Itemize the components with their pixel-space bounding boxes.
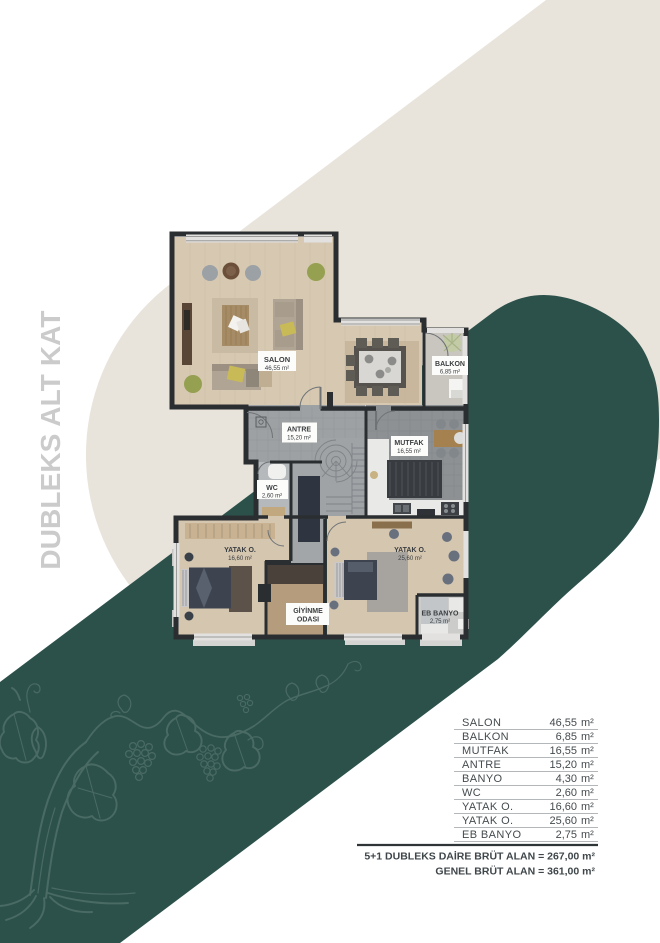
svg-text:GENEL BRÜT ALAN = 361,00 m²: GENEL BRÜT ALAN = 361,00 m² — [435, 865, 595, 878]
svg-text:m²: m² — [581, 829, 594, 841]
svg-text:16,55: 16,55 — [549, 745, 577, 757]
svg-text:16,60 m²: 16,60 m² — [228, 556, 252, 562]
svg-text:GİYİNME: GİYİNME — [293, 607, 323, 615]
svg-text:ANTRE: ANTRE — [462, 759, 501, 771]
svg-text:2,60: 2,60 — [556, 787, 577, 799]
svg-text:2,75: 2,75 — [556, 829, 577, 841]
svg-text:2,60 m²: 2,60 m² — [262, 494, 282, 500]
svg-text:m²: m² — [581, 801, 594, 813]
svg-text:5+1 DUBLEKS DAİRE BRÜT ALAN =: 5+1 DUBLEKS DAİRE BRÜT ALAN = 267,00 m² — [364, 850, 595, 863]
svg-text:ANTRE: ANTRE — [287, 427, 311, 434]
svg-text:YATAK O.: YATAK O. — [394, 547, 426, 554]
svg-text:BALKON: BALKON — [462, 731, 509, 743]
svg-text:16,55 m²: 16,55 m² — [397, 449, 421, 455]
svg-text:MUTFAK: MUTFAK — [394, 440, 423, 447]
svg-text:YATAK O.: YATAK O. — [462, 815, 514, 827]
svg-text:m²: m² — [581, 787, 594, 799]
svg-text:DUBLEKS ALT KAT: DUBLEKS ALT KAT — [35, 310, 66, 569]
svg-text:4,30: 4,30 — [556, 773, 577, 785]
svg-text:15,20 m²: 15,20 m² — [287, 436, 311, 442]
svg-text:BALKON: BALKON — [435, 361, 465, 368]
svg-text:SALON: SALON — [462, 717, 501, 729]
svg-text:6,85: 6,85 — [556, 731, 577, 743]
svg-text:15,20: 15,20 — [549, 759, 577, 771]
svg-text:WC: WC — [266, 485, 278, 492]
svg-text:WC: WC — [462, 787, 481, 799]
svg-text:m²: m² — [581, 815, 594, 827]
svg-text:EB BANYO: EB BANYO — [422, 611, 460, 618]
svg-text:6,85 m²: 6,85 m² — [440, 370, 460, 376]
svg-text:2,75 m²: 2,75 m² — [430, 619, 450, 625]
svg-text:16,60: 16,60 — [549, 801, 577, 813]
svg-text:ODASI: ODASI — [297, 617, 319, 624]
svg-text:25,60 m²: 25,60 m² — [398, 556, 422, 562]
svg-text:YATAK O.: YATAK O. — [462, 801, 514, 813]
svg-text:m²: m² — [581, 759, 594, 771]
svg-text:m²: m² — [581, 745, 594, 757]
svg-text:46,55: 46,55 — [549, 717, 577, 729]
svg-text:m²: m² — [581, 717, 594, 729]
svg-text:m²: m² — [581, 731, 594, 743]
svg-text:EB BANYO: EB BANYO — [462, 829, 521, 841]
svg-text:46,55 m²: 46,55 m² — [265, 365, 289, 372]
svg-text:MUTFAK: MUTFAK — [462, 745, 509, 757]
svg-text:SALON: SALON — [264, 355, 290, 364]
svg-text:BANYO: BANYO — [462, 773, 503, 785]
svg-text:25,60: 25,60 — [549, 815, 577, 827]
svg-text:m²: m² — [581, 773, 594, 785]
svg-text:YATAK O.: YATAK O. — [224, 547, 256, 554]
